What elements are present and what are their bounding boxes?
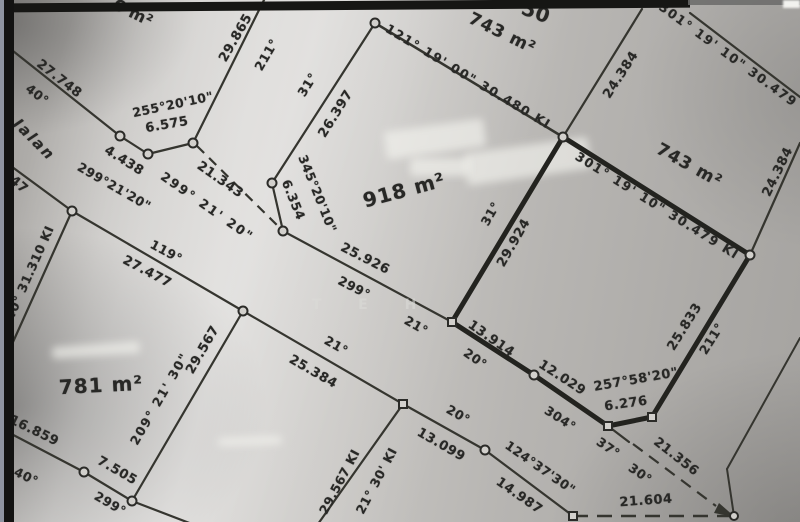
- scan-left-edge-outer: [0, 0, 4, 522]
- cadastral-map-scan: 6 m² 27.748 40° Jalan 255°20'10" 6.575 2…: [0, 0, 800, 522]
- scan-left-edge: [3, 0, 14, 522]
- parcel-boundary-lines: [0, 0, 800, 522]
- area-label: 781 m²: [58, 373, 143, 397]
- scan-corner-highlight: [783, 0, 800, 8]
- distance-label: 21.604: [619, 493, 673, 510]
- watermark-label: T E H: [312, 298, 433, 312]
